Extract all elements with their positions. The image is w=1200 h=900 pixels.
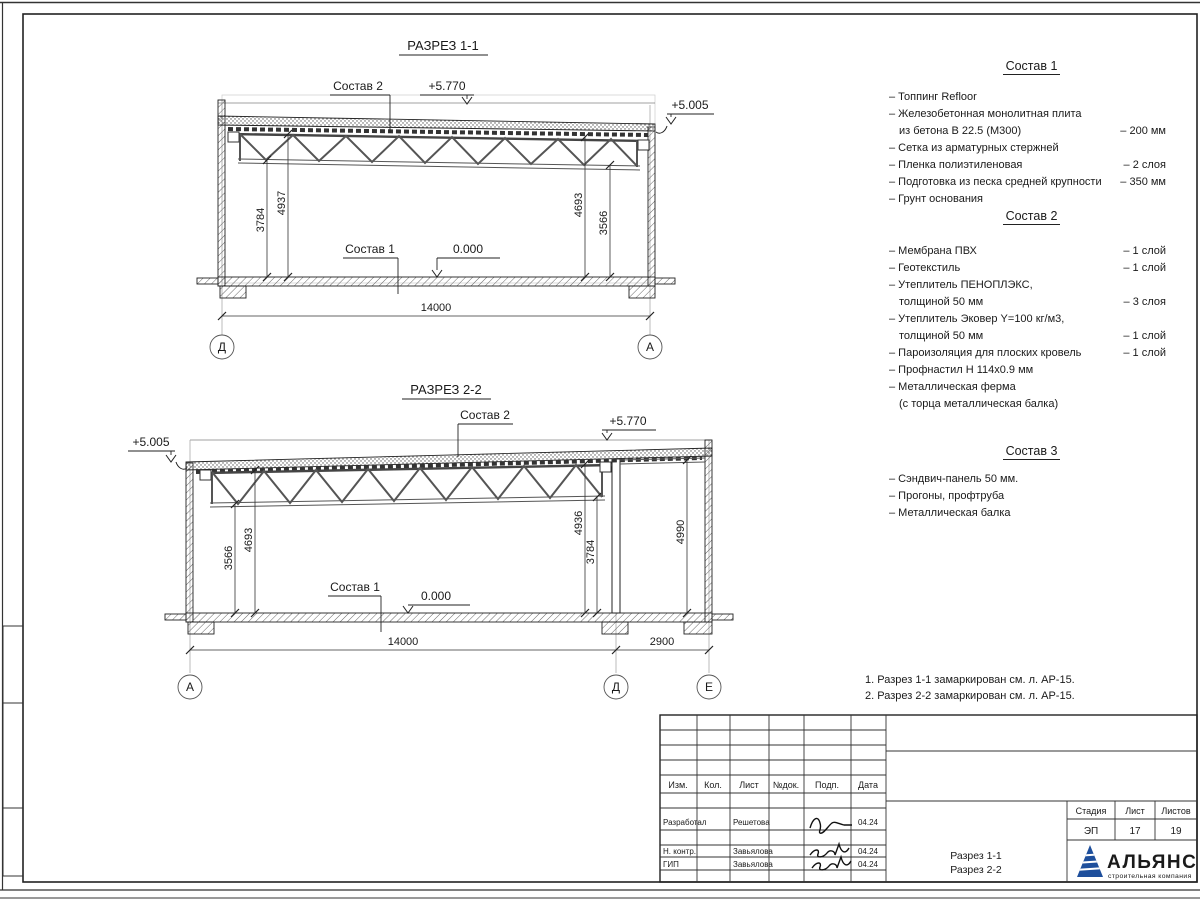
comp-item-text: – Металлическая балка bbox=[889, 505, 1011, 522]
comp-item-text: – Утеплитель ПЕНОПЛЭКС, bbox=[889, 277, 1033, 294]
axis-markers: А Д Е bbox=[178, 675, 721, 699]
roof-slab bbox=[186, 448, 712, 470]
header-kol: Кол. bbox=[704, 780, 722, 790]
comp-item-row: – Металлическая балка bbox=[889, 505, 1174, 522]
comp-item-value: – 1 слой bbox=[1123, 328, 1166, 345]
comp-item-row: – Металлическая ферма bbox=[889, 379, 1174, 396]
dim-4936: 4936 bbox=[573, 511, 585, 535]
dim-2900: 2900 bbox=[650, 636, 674, 648]
composition-title-text: Состав 2 bbox=[1003, 209, 1061, 225]
composition-items: – Сэндвич-панель 50 мм. – Прогоны, профт… bbox=[889, 471, 1174, 522]
sheet-value: 17 bbox=[1129, 826, 1141, 837]
level-mark-0000: 0.000 bbox=[432, 242, 500, 277]
dim-4693: 4693 bbox=[573, 193, 585, 217]
section-1-1: РАЗРЕЗ 1-1 bbox=[197, 38, 714, 359]
wall-left bbox=[186, 463, 193, 622]
comp-item-row: – Прогоны, профтруба bbox=[889, 488, 1174, 505]
header-list: Лист bbox=[739, 780, 759, 790]
header-izm: Изм. bbox=[668, 780, 687, 790]
level-mark-5770: +5.770 bbox=[420, 79, 474, 104]
composition-items: – Топпинг Refloor – Железобетонная монол… bbox=[889, 89, 1174, 208]
comp-item-value: – 1 слой bbox=[1123, 345, 1166, 362]
wall-left bbox=[218, 100, 225, 286]
sheet-label: Лист bbox=[1125, 806, 1145, 816]
signatures bbox=[810, 818, 852, 869]
stage-label: Стадия bbox=[1076, 806, 1107, 816]
roof-slab bbox=[218, 116, 655, 131]
ground-ledge-right bbox=[712, 614, 733, 620]
composition-title-text: Состав 1 bbox=[1003, 59, 1061, 75]
comp-item-text: – Сэндвич-панель 50 мм. bbox=[889, 471, 1018, 488]
comp-item-row: толщиной 50 мм– 3 слоя bbox=[889, 294, 1174, 311]
dim-3784: 3784 bbox=[585, 540, 597, 564]
comp-item-row: – Сэндвич-панель 50 мм. bbox=[889, 471, 1174, 488]
dim-3566: 3566 bbox=[598, 211, 610, 235]
axis-left: Д bbox=[218, 340, 226, 354]
dim-3566: 3566 bbox=[223, 546, 235, 570]
sheets-value: 19 bbox=[1170, 826, 1182, 837]
section-2-2-title: РАЗРЕЗ 2-2 bbox=[410, 382, 482, 397]
dim-4937: 4937 bbox=[276, 191, 288, 215]
axis-right: Е bbox=[705, 680, 713, 694]
level-mark-5770: +5.770 bbox=[602, 414, 656, 440]
header-ndok: №док. bbox=[773, 780, 799, 790]
axis-right: А bbox=[646, 340, 654, 354]
row-name: Решетова bbox=[733, 818, 770, 827]
svg-text:+5.770: +5.770 bbox=[428, 79, 465, 93]
ground-ledge-right bbox=[655, 278, 675, 284]
doc-title-line1: Разрез 1-1 bbox=[950, 850, 1002, 862]
comp-item-text: – Мембрана ПВХ bbox=[889, 243, 977, 260]
row-role: Н. контр. bbox=[663, 847, 696, 856]
comp-item-text: – Профнастил Н 114х0.9 мм bbox=[889, 362, 1033, 379]
column-d bbox=[612, 459, 620, 613]
comp-item-row: – Профнастил Н 114х0.9 мм bbox=[889, 362, 1174, 379]
comp-item-value: – 1 слой bbox=[1123, 243, 1166, 260]
comp-item-row: – Утеплитель Эковер Y=100 кг/м3, bbox=[889, 311, 1174, 328]
span-dims: 14000 2900 bbox=[186, 636, 713, 654]
stage-sheet-cells: Стадия Лист Листов ЭП 17 19 bbox=[1076, 806, 1191, 837]
comp-item-row: – Пленка полиэтиленовая– 2 слоя bbox=[889, 157, 1174, 174]
stamp-headers: Изм. Кол. Лист №док. Подп. Дата bbox=[668, 780, 878, 790]
row-date: 04.24 bbox=[858, 860, 879, 869]
comp-item-value: – 3 слоя bbox=[1124, 294, 1166, 311]
comp-item-row: – Железобетонная монолитная плита bbox=[889, 106, 1174, 123]
comp-item-text: – Грунт основания bbox=[889, 191, 983, 208]
composition-title: Состав 1 bbox=[889, 59, 1174, 73]
axis-mid: Д bbox=[612, 680, 620, 694]
ground-ledge-left bbox=[197, 278, 218, 284]
svg-text:+5.005: +5.005 bbox=[671, 98, 708, 112]
dim-4693: 4693 bbox=[243, 528, 255, 552]
dim-14000: 14000 bbox=[421, 302, 452, 314]
composition-3: Состав 3 – Сэндвич-панель 50 мм. – Прого… bbox=[889, 444, 1174, 522]
level-mark-0000: 0.000 bbox=[403, 589, 470, 613]
comp-item-text: из бетона В 22.5 (М300) bbox=[889, 123, 1021, 140]
comp-item-text: толщиной 50 мм bbox=[889, 294, 983, 311]
comp-item-row: – Подготовка из песка средней крупности–… bbox=[889, 174, 1174, 191]
svg-text:+5.770: +5.770 bbox=[609, 414, 646, 428]
comp-item-text: – Утеплитель Эковер Y=100 кг/м3, bbox=[889, 311, 1064, 328]
comp-item-text: – Топпинг Refloor bbox=[889, 89, 977, 106]
dim-14000: 14000 bbox=[388, 636, 419, 648]
floor-slab bbox=[186, 613, 712, 622]
note-line: 1. Разрез 1-1 замаркирован см. л. АР-15. bbox=[865, 672, 1075, 688]
signature bbox=[812, 857, 851, 870]
truss bbox=[228, 132, 649, 170]
doc-title: Разрез 1-1 Разрез 2-2 bbox=[950, 850, 1002, 876]
foundation-left bbox=[188, 622, 214, 634]
notes: 1. Разрез 1-1 замаркирован см. л. АР-15.… bbox=[865, 672, 1075, 704]
comp-item-row: – Топпинг Refloor bbox=[889, 89, 1174, 106]
header-data: Дата bbox=[858, 780, 878, 790]
sheets-label: Листов bbox=[1161, 806, 1190, 816]
row-date: 04.24 bbox=[858, 847, 879, 856]
wall-right bbox=[705, 440, 712, 622]
signature bbox=[810, 844, 849, 857]
composition-2: Состав 2 – Мембрана ПВХ– 1 слой – Геотек… bbox=[889, 209, 1174, 413]
comp-item-text: – Подготовка из песка средней крупности bbox=[889, 174, 1102, 191]
foundation-mid bbox=[602, 622, 628, 634]
comp-item-row: (с торца металлическая балка) bbox=[889, 396, 1174, 413]
label-sostav2: Состав 2 bbox=[458, 408, 513, 457]
comp-item-text: – Железобетонная монолитная плита bbox=[889, 106, 1082, 123]
comp-item-row: из бетона В 22.5 (М300)– 200 мм bbox=[889, 123, 1174, 140]
level-mark-5005: +5.005 bbox=[128, 435, 187, 469]
wall-right bbox=[648, 127, 655, 286]
floor-slab bbox=[218, 277, 655, 286]
svg-text:Состав 1: Состав 1 bbox=[330, 580, 380, 594]
comp-item-row: – Утеплитель ПЕНОПЛЭКС, bbox=[889, 277, 1174, 294]
comp-item-row: – Грунт основания bbox=[889, 191, 1174, 208]
composition-1: Состав 1 – Топпинг Refloor – Железобетон… bbox=[889, 59, 1174, 208]
comp-item-value: – 350 мм bbox=[1120, 174, 1166, 191]
row-role: Разработал bbox=[663, 818, 707, 827]
axis-markers: Д А bbox=[210, 335, 662, 359]
logo-subtitle: строительная компания bbox=[1108, 873, 1192, 880]
composition-title-text: Состав 3 bbox=[1003, 444, 1061, 460]
comp-item-row: – Сетка из арматурных стержней bbox=[889, 140, 1174, 157]
svg-text:Состав 2: Состав 2 bbox=[333, 79, 383, 93]
ground-ledge-left bbox=[165, 614, 186, 620]
span-dim: 14000 bbox=[218, 302, 654, 320]
comp-item-text: толщиной 50 мм bbox=[889, 328, 983, 345]
row-date: 04.24 bbox=[858, 818, 879, 827]
composition-items: – Мембрана ПВХ– 1 слой – Геотекстиль– 1 … bbox=[889, 243, 1174, 413]
svg-text:0.000: 0.000 bbox=[453, 242, 483, 256]
section-1-1-title: РАЗРЕЗ 1-1 bbox=[407, 38, 479, 53]
vertical-dim-lines bbox=[267, 134, 610, 277]
drawing-sheet: РАЗРЕЗ 1-1 bbox=[0, 0, 1200, 900]
level-mark-5005: +5.005 bbox=[656, 98, 714, 133]
foundation-left bbox=[220, 286, 246, 298]
row-name: Завьялова bbox=[733, 860, 773, 869]
comp-item-text: – Металлическая ферма bbox=[889, 379, 1016, 396]
comp-item-text: – Пленка полиэтиленовая bbox=[889, 157, 1022, 174]
comp-item-text: – Пароизоляция для плоских кровель bbox=[889, 345, 1081, 362]
comp-item-row: толщиной 50 мм– 1 слой bbox=[889, 328, 1174, 345]
row-role: ГИП bbox=[663, 860, 679, 869]
dim-4990: 4990 bbox=[675, 520, 687, 544]
header-podp: Подп. bbox=[815, 780, 839, 790]
svg-text:0.000: 0.000 bbox=[421, 589, 451, 603]
title-block: Изм. Кол. Лист №док. Подп. Дата Разработ… bbox=[660, 715, 1197, 882]
comp-item-text: – Сетка из арматурных стержней bbox=[889, 140, 1059, 157]
note-line: 2. Разрез 2-2 замаркирован см. л. АР-15. bbox=[865, 688, 1075, 704]
logo-name: АЛЬЯНС bbox=[1107, 852, 1197, 873]
foundation-right bbox=[684, 622, 712, 634]
dim-3784: 3784 bbox=[255, 208, 267, 232]
foundation-right bbox=[629, 286, 655, 298]
svg-text:Состав 1: Состав 1 bbox=[345, 242, 395, 256]
comp-item-text: – Геотекстиль bbox=[889, 260, 960, 277]
comp-item-row: – Геотекстиль– 1 слой bbox=[889, 260, 1174, 277]
axis-left: А bbox=[186, 680, 194, 694]
row-name: Завьялова bbox=[733, 847, 773, 856]
svg-text:+5.005: +5.005 bbox=[132, 435, 169, 449]
stage-value: ЭП bbox=[1084, 826, 1098, 837]
section-2-2: РАЗРЕЗ 2-2 bbox=[128, 382, 733, 699]
label-sostav1: Состав 1 bbox=[328, 580, 381, 632]
composition-title: Состав 3 bbox=[889, 444, 1174, 458]
comp-item-text: – Прогоны, профтруба bbox=[889, 488, 1004, 505]
composition-title: Состав 2 bbox=[889, 209, 1174, 223]
comp-item-row: – Пароизоляция для плоских кровель– 1 сл… bbox=[889, 345, 1174, 362]
comp-item-value: – 200 мм bbox=[1120, 123, 1166, 140]
comp-item-value: – 2 слоя bbox=[1124, 157, 1166, 174]
signature bbox=[810, 818, 852, 833]
comp-item-value: – 1 слой bbox=[1123, 260, 1166, 277]
svg-text:Состав 2: Состав 2 bbox=[460, 408, 510, 422]
doc-title-line2: Разрез 2-2 bbox=[950, 864, 1002, 876]
left-attribute-strip bbox=[3, 626, 23, 876]
comp-item-text: (с торца металлическая балка) bbox=[889, 396, 1058, 413]
comp-item-row: – Мембрана ПВХ– 1 слой bbox=[889, 243, 1174, 260]
company-logo: АЛЬЯНС строительная компания bbox=[1075, 845, 1197, 880]
